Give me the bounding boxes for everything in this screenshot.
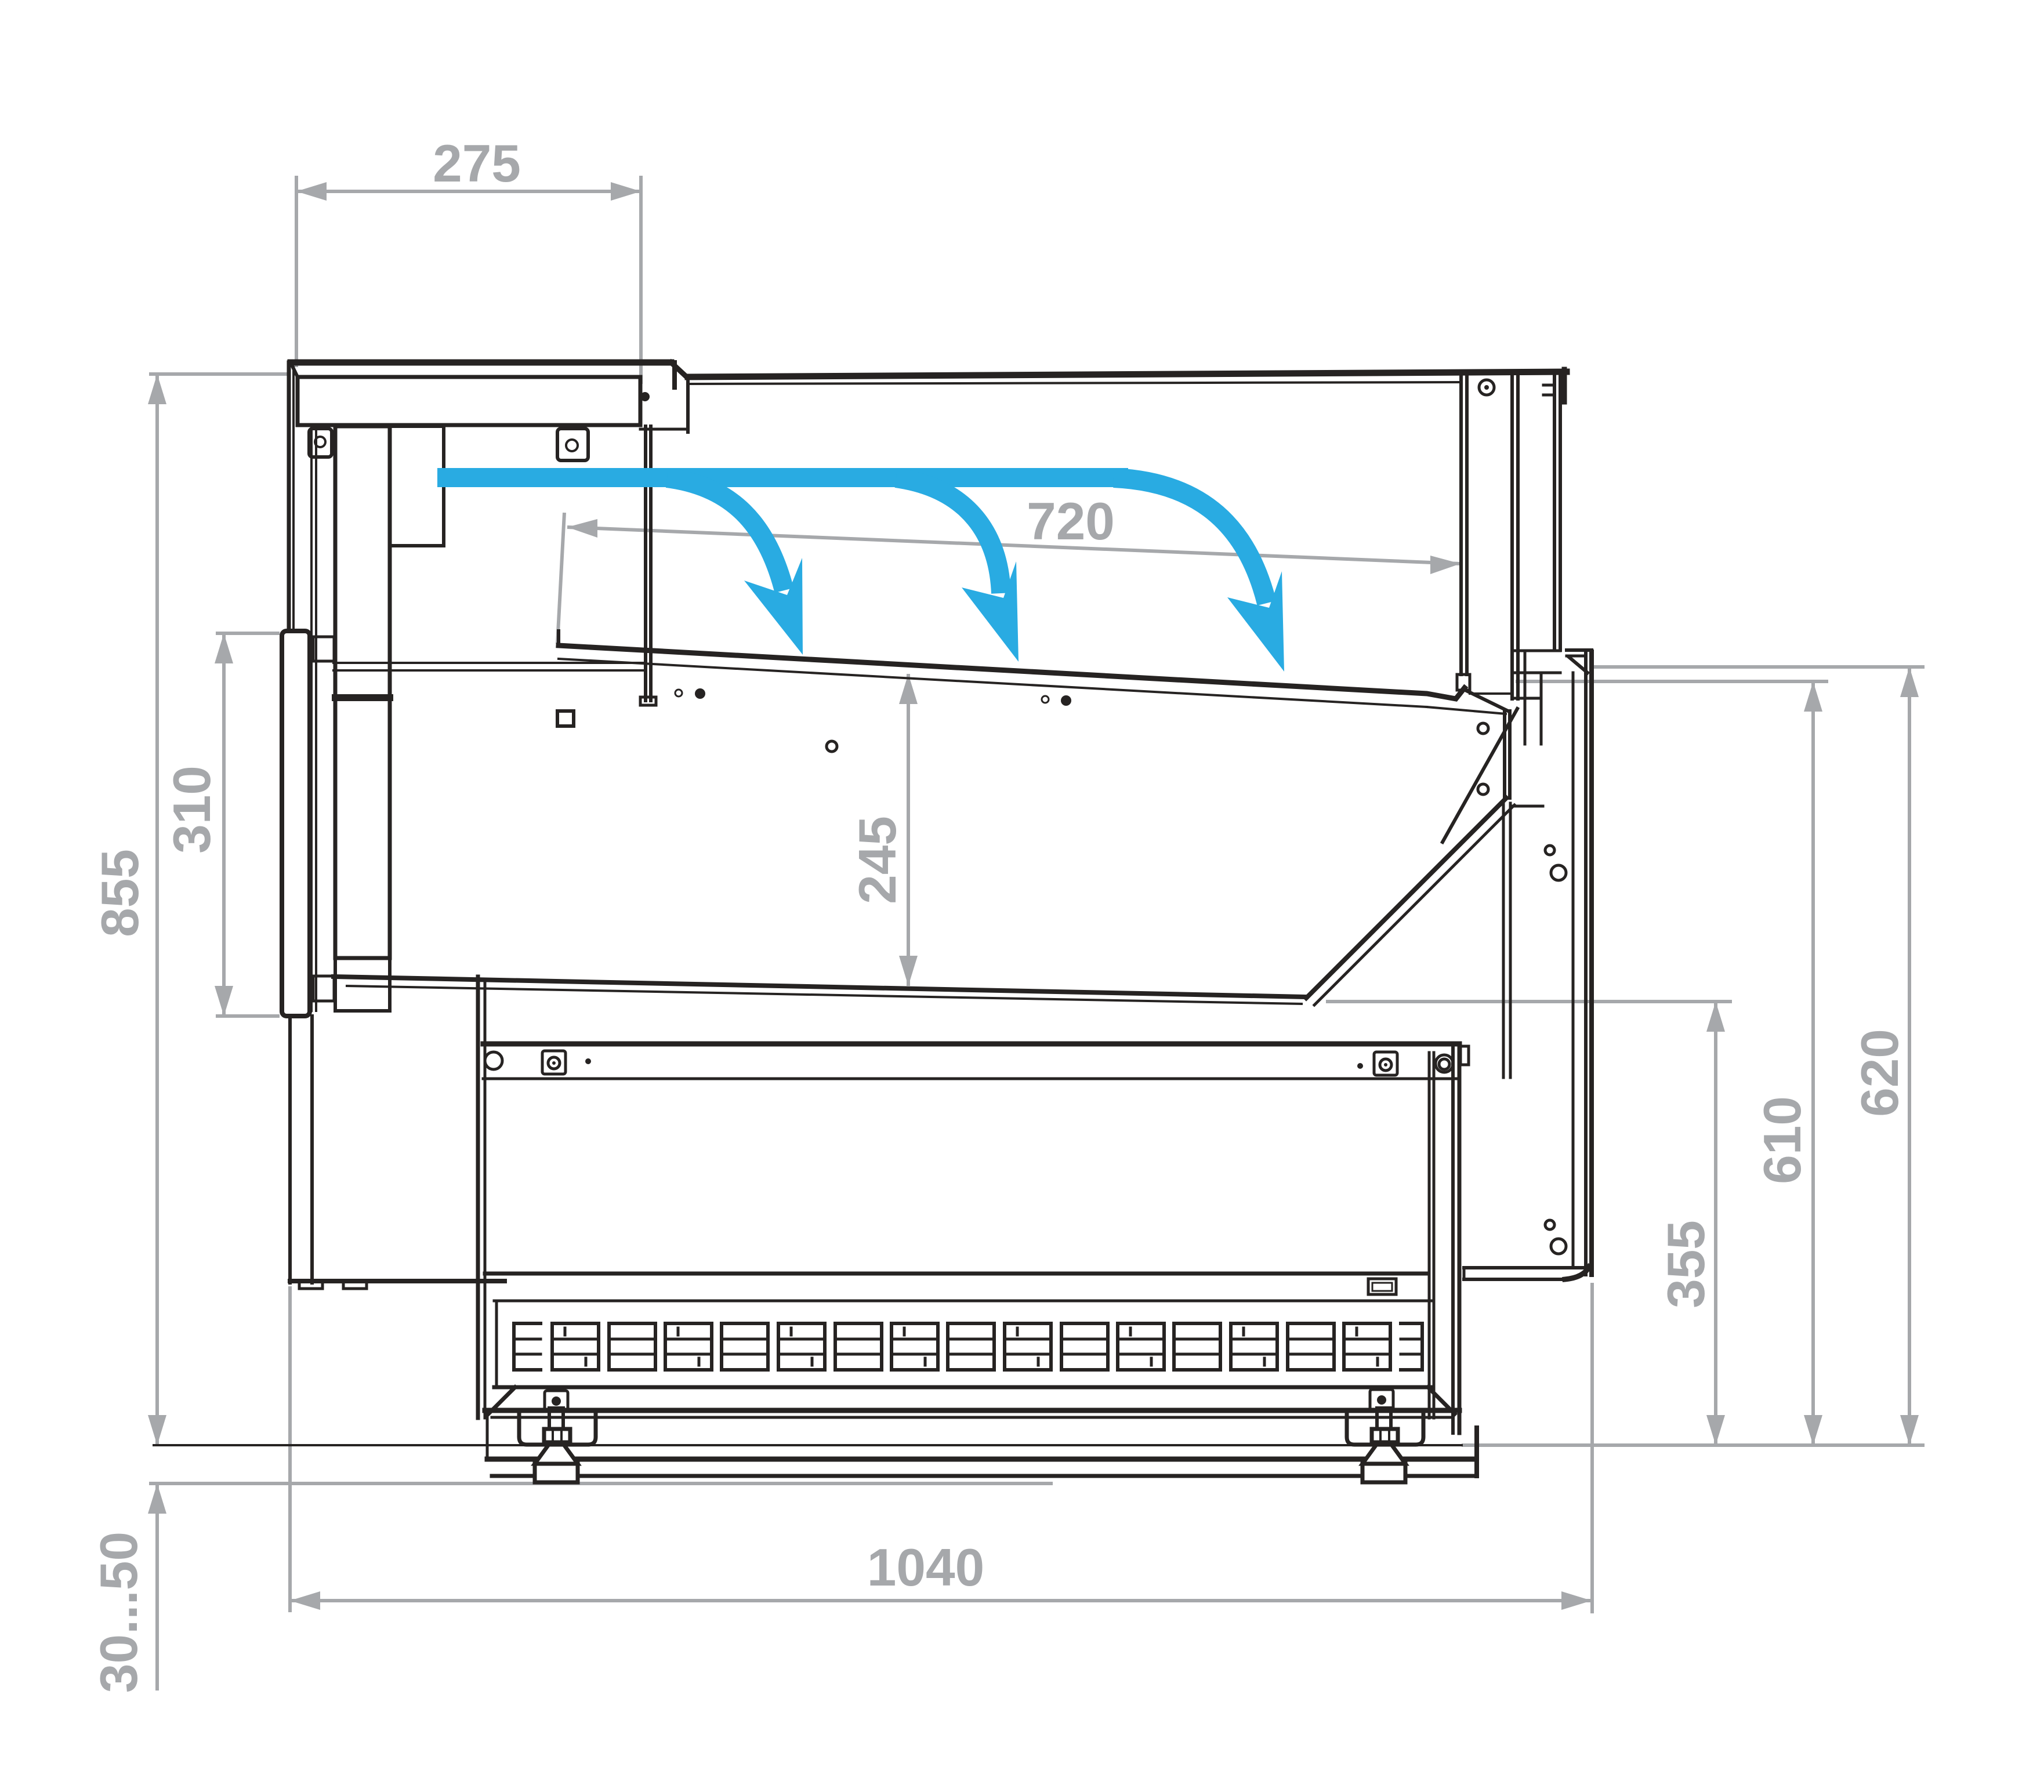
svg-text:610: 610: [1753, 1096, 1812, 1184]
svg-text:275: 275: [433, 135, 521, 193]
svg-text:355: 355: [1657, 1220, 1716, 1308]
svg-text:310: 310: [163, 766, 222, 854]
svg-text:620: 620: [1851, 1029, 1909, 1117]
svg-text:1040: 1040: [867, 1539, 984, 1597]
svg-text:855: 855: [91, 849, 150, 937]
svg-text:245: 245: [849, 816, 907, 904]
svg-text:720: 720: [1027, 492, 1115, 551]
svg-text:30...50: 30...50: [90, 1532, 148, 1693]
